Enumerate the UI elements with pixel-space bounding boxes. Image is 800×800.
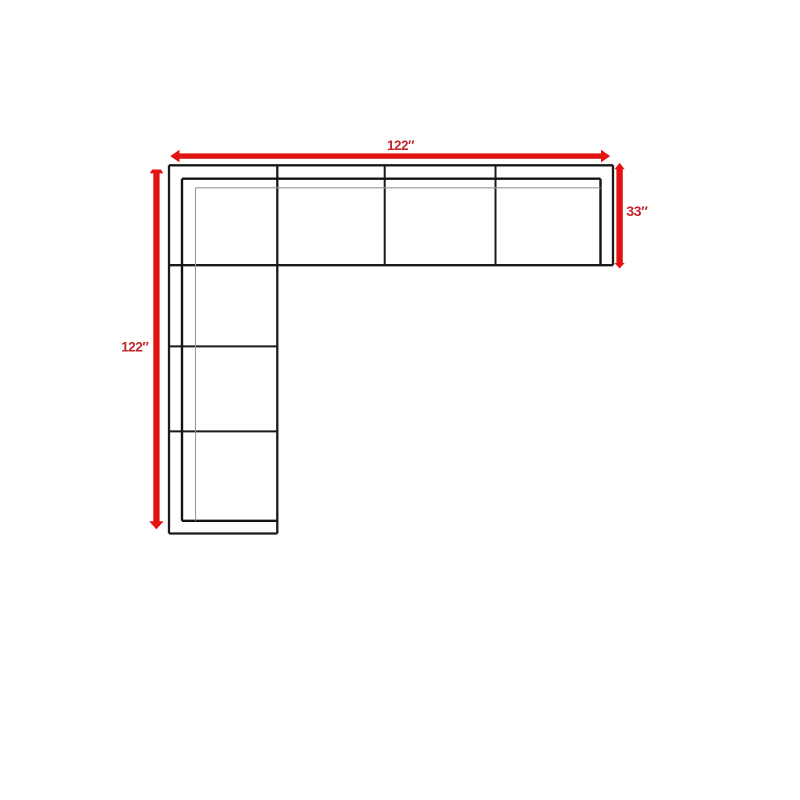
svg-text:122″: 122″ <box>121 339 149 354</box>
svg-text:33″: 33″ <box>626 204 648 220</box>
svg-text:122″: 122″ <box>387 138 415 153</box>
